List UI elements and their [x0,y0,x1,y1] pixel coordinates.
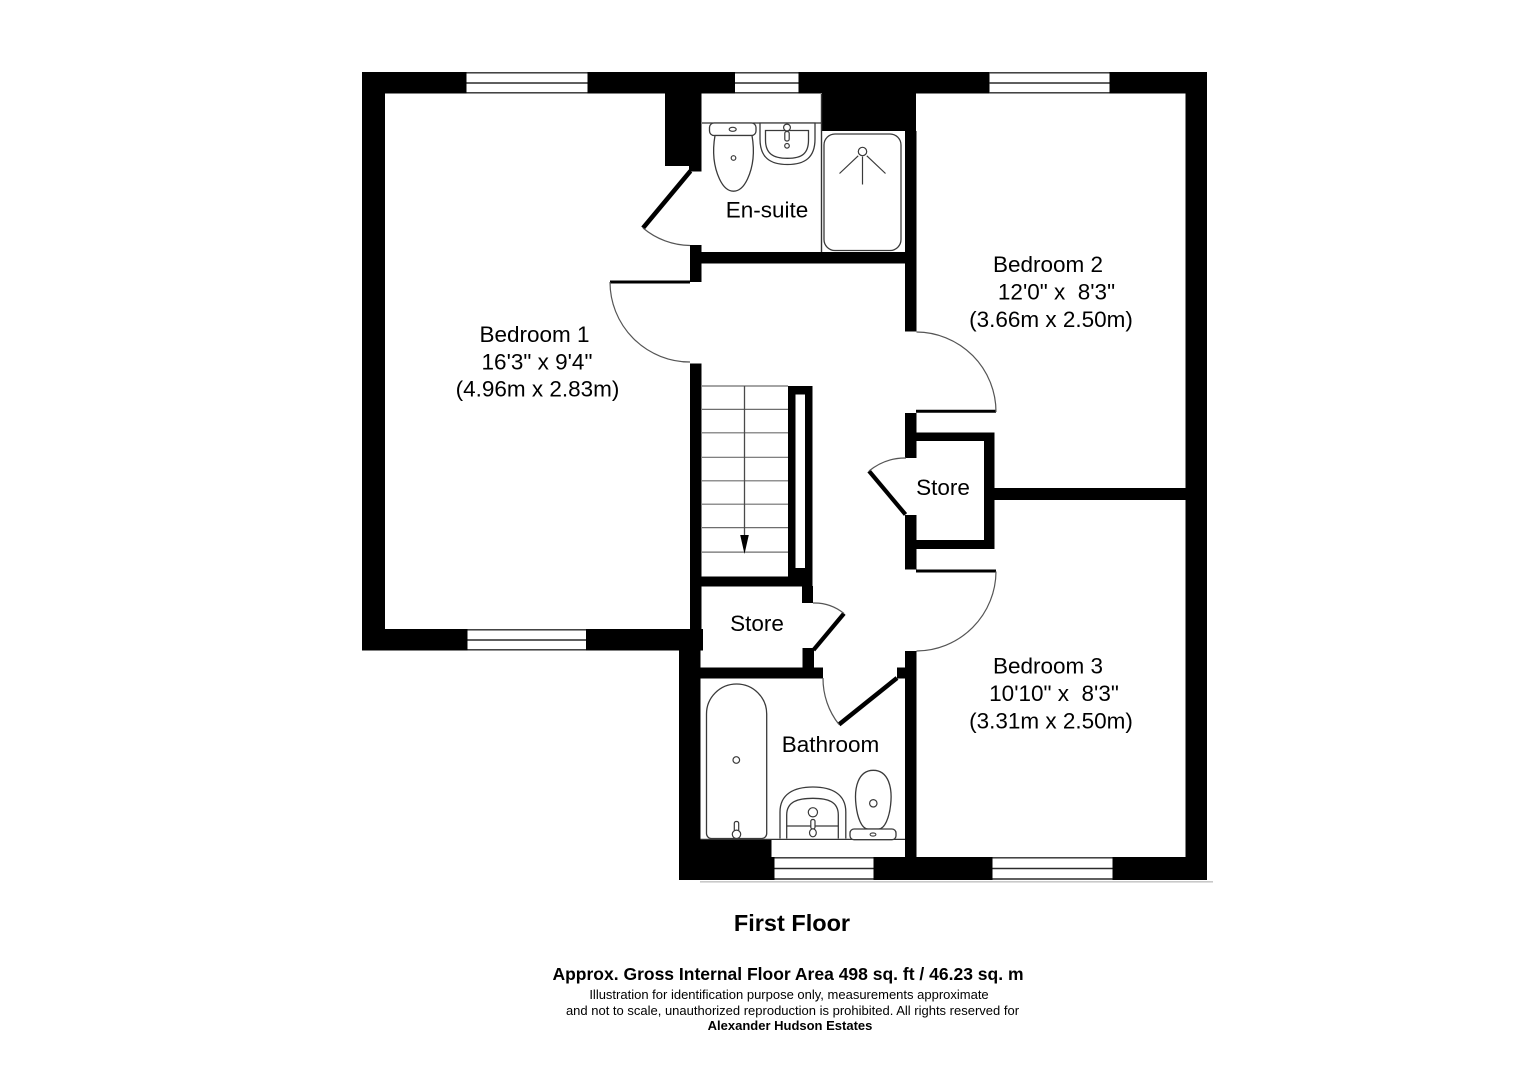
svg-text:Store: Store [730,611,784,636]
svg-text:Bedroom 2: Bedroom 2 [993,252,1103,277]
svg-text:(3.31m x 2.50m): (3.31m x 2.50m) [969,709,1133,734]
svg-text:Store: Store [916,475,970,500]
svg-text:Bathroom: Bathroom [782,732,880,757]
svg-text:10'10" x 8'3": 10'10" x 8'3" [989,681,1119,706]
svg-text:Bedroom 3: Bedroom 3 [993,654,1103,679]
svg-text:En-suite: En-suite [726,198,809,223]
svg-text:(3.66m x 2.50m): (3.66m x 2.50m) [969,307,1133,332]
svg-text:First Floor: First Floor [734,910,850,936]
svg-text:12'0" x 8'3": 12'0" x 8'3" [998,280,1115,305]
svg-text:Illustration for identificatio: Illustration for identification purpose … [589,987,988,1002]
svg-text:and not to scale, unauthorized: and not to scale, unauthorized reproduct… [566,1003,1020,1018]
svg-text:Alexander Hudson Estates: Alexander Hudson Estates [708,1018,873,1033]
svg-text:Bedroom 1: Bedroom 1 [479,322,589,347]
svg-text:(4.96m x 2.83m): (4.96m x 2.83m) [456,377,620,402]
svg-text:Approx. Gross Internal Floor A: Approx. Gross Internal Floor Area 498 sq… [552,964,1023,984]
svg-text:16'3" x 9'4": 16'3" x 9'4" [482,350,593,375]
